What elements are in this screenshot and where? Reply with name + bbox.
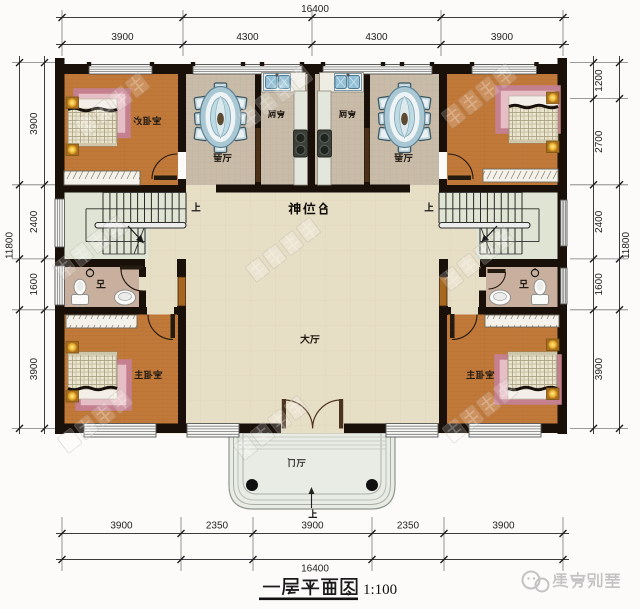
svg-text:2700: 2700 <box>594 130 605 153</box>
svg-text:2400: 2400 <box>29 210 40 233</box>
svg-text:2400: 2400 <box>594 210 605 233</box>
svg-text:3900: 3900 <box>110 521 133 532</box>
svg-text:11800: 11800 <box>621 232 632 260</box>
svg-text:1200: 1200 <box>594 69 605 92</box>
svg-text:16400: 16400 <box>301 4 329 15</box>
svg-text:1:100: 1:100 <box>363 582 397 598</box>
svg-text:3900: 3900 <box>492 521 515 532</box>
svg-text:2350: 2350 <box>397 521 420 532</box>
svg-text:3900: 3900 <box>29 112 40 135</box>
svg-text:11800: 11800 <box>5 232 16 260</box>
svg-text:16400: 16400 <box>301 564 329 575</box>
svg-text:1600: 1600 <box>594 273 605 296</box>
svg-text:4300: 4300 <box>236 32 259 43</box>
svg-text:3900: 3900 <box>301 521 324 532</box>
svg-text:3900: 3900 <box>594 358 605 381</box>
svg-text:4300: 4300 <box>365 32 388 43</box>
svg-text:1600: 1600 <box>29 273 40 296</box>
svg-text:2350: 2350 <box>206 521 229 532</box>
svg-text:3900: 3900 <box>111 32 134 43</box>
svg-text:3900: 3900 <box>491 32 514 43</box>
svg-text:3900: 3900 <box>29 358 40 381</box>
